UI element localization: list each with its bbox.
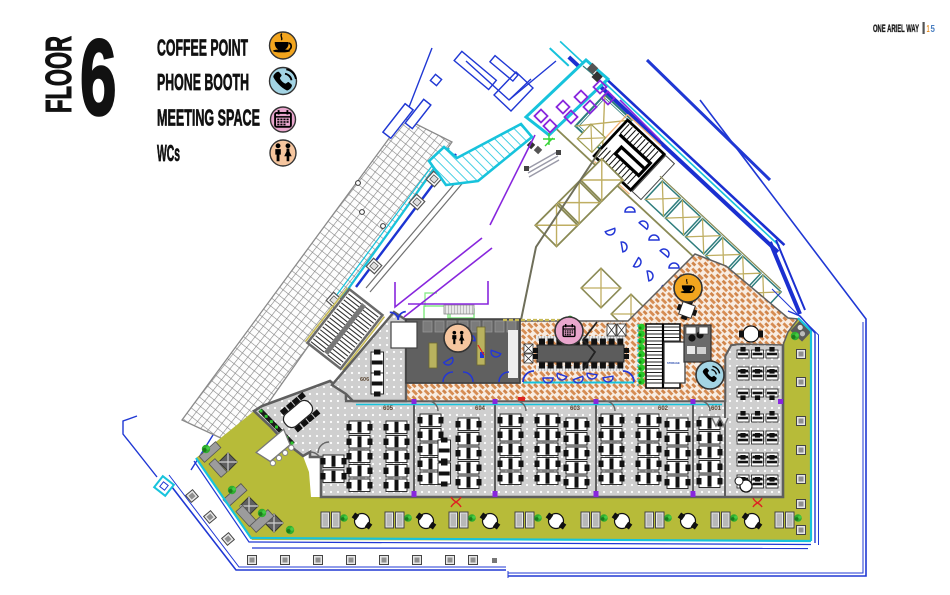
svg-text:602: 602 bbox=[658, 406, 669, 412]
svg-text:604: 604 bbox=[475, 406, 486, 412]
svg-text:PHONE BOOTH: PHONE BOOTH bbox=[157, 69, 249, 95]
svg-text:606: 606 bbox=[360, 377, 369, 383]
svg-text:5: 5 bbox=[931, 23, 936, 35]
svg-text:605: 605 bbox=[383, 406, 394, 412]
svg-text:MEETING SPACE: MEETING SPACE bbox=[157, 105, 260, 131]
svg-text:6: 6 bbox=[80, 17, 117, 138]
svg-text:1: 1 bbox=[927, 23, 930, 35]
svg-text:603: 603 bbox=[570, 406, 581, 412]
svg-text:WCs: WCs bbox=[157, 140, 180, 166]
svg-text:STORAGE: STORAGE bbox=[667, 361, 680, 365]
svg-text:COFFEE POINT: COFFEE POINT bbox=[157, 35, 248, 61]
svg-text:ONE ARIEL WAY: ONE ARIEL WAY bbox=[873, 23, 919, 35]
svg-text:601: 601 bbox=[711, 406, 722, 412]
svg-text:FLOOR: FLOOR bbox=[38, 36, 79, 113]
